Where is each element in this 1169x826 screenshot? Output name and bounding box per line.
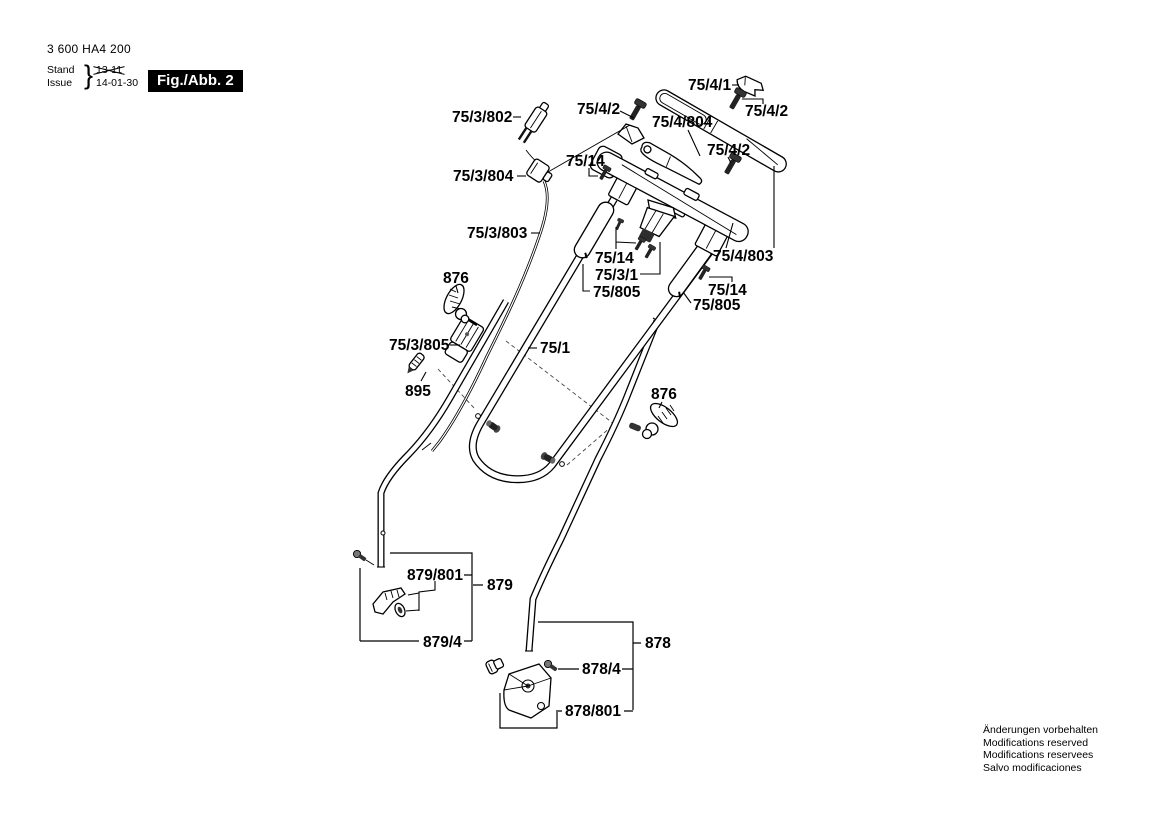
pivot-bracket-piece	[618, 124, 644, 144]
plug-part	[485, 656, 505, 675]
part-label-876-a: 876	[443, 270, 469, 287]
screw-75-14-d	[643, 244, 657, 260]
part-label-879-4: 879/4	[423, 634, 462, 651]
part-label-75-4-2-b: 75/4/2	[745, 103, 788, 120]
assembly-axis-lines	[438, 341, 619, 465]
part-label-75-4-803: 75/4/803	[713, 248, 774, 265]
part-label-876-b: 876	[651, 386, 677, 403]
part-label-878: 878	[645, 635, 671, 652]
grommet	[393, 602, 407, 618]
part-label-75-3-802: 75/3/802	[452, 109, 512, 126]
part-label-879: 879	[487, 577, 513, 594]
screw-leader-879-4	[366, 560, 374, 565]
screw-879-4	[352, 549, 368, 563]
screw-75-4-2-a	[626, 98, 647, 122]
wing-lever-left	[440, 281, 477, 325]
part-label-878-801: 878/801	[565, 703, 621, 720]
part-label-878-4: 878/4	[582, 661, 621, 678]
part-label-75-3-1: 75/3/1	[595, 267, 638, 284]
part-label-75-805-a: 75/805	[593, 284, 641, 301]
part-label-879-801: 879/801	[407, 567, 463, 584]
wing-lever-right	[628, 399, 681, 438]
part-label-75-4-2-c: 75/4/2	[707, 142, 750, 159]
connector-plug	[516, 100, 551, 145]
part-label-75-4-2-a: 75/4/2	[577, 101, 620, 118]
part-label-895: 895	[405, 383, 431, 400]
part-label-75-4-804: 75/4/804	[652, 114, 713, 131]
part-label-75-805-b: 75/805	[693, 297, 741, 314]
part-label-75-4-1: 75/4/1	[688, 77, 731, 94]
parts-diagram-page: 3 600 HA4 200 Stand Issue } 13-11 14-01-…	[0, 0, 1169, 826]
carriage-bolt-left	[485, 419, 502, 434]
part-label-75-3-804: 75/3/804	[453, 168, 514, 185]
part-label-75-14-b: 75/14	[595, 250, 634, 267]
part-label-75-3-805: 75/3/805	[389, 337, 450, 354]
mounting-bracket	[504, 664, 551, 718]
part-label-75-14-a: 75/14	[566, 153, 605, 170]
cable-connector-block	[526, 158, 556, 186]
part-label-75-3-803: 75/3/803	[467, 225, 528, 242]
screw-75-14-b	[614, 218, 625, 231]
cable-end-pin	[404, 352, 425, 376]
lower-tube-right	[525, 318, 661, 651]
exploded-view-drawing: 75/4/1 75/4/2 75/4/804 75/4/2 75/4/2 75/…	[0, 0, 1169, 826]
part-label-75-1: 75/1	[540, 340, 571, 357]
